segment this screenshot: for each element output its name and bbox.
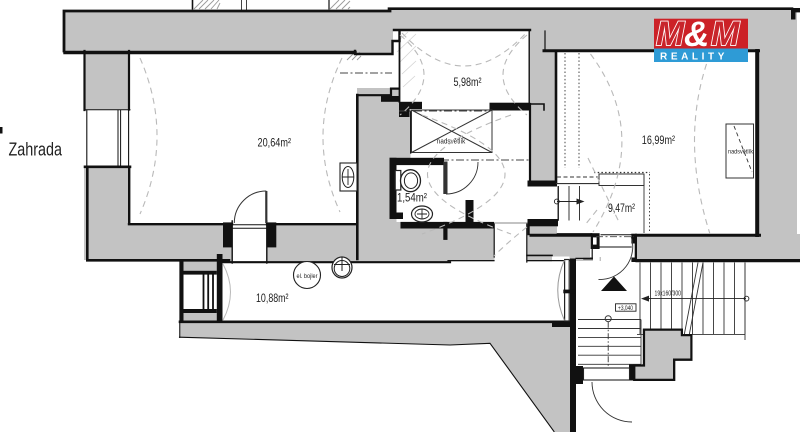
svg-text:M: M	[656, 15, 685, 53]
svg-text:20,64m²: 20,64m²	[258, 136, 292, 150]
svg-text:+3,040: +3,040	[618, 305, 633, 312]
svg-text:&: &	[684, 15, 709, 54]
svg-text:el. bojler: el. bojler	[297, 274, 318, 280]
svg-text:9,47m²: 9,47m²	[608, 201, 635, 215]
svg-text:5,98m²: 5,98m²	[454, 75, 482, 89]
svg-text:10,88m²: 10,88m²	[256, 291, 289, 305]
svg-text:1,54m²: 1,54m²	[397, 191, 427, 205]
svg-text:16,99m²: 16,99m²	[642, 133, 675, 147]
svg-text:Zahrada: Zahrada	[9, 139, 63, 159]
svg-text:M: M	[711, 15, 740, 53]
svg-text:REALITY: REALITY	[660, 52, 728, 63]
svg-text:19x160/300: 19x160/300	[655, 290, 682, 297]
svg-text:nadsvětlík: nadsvětlík	[728, 149, 754, 156]
